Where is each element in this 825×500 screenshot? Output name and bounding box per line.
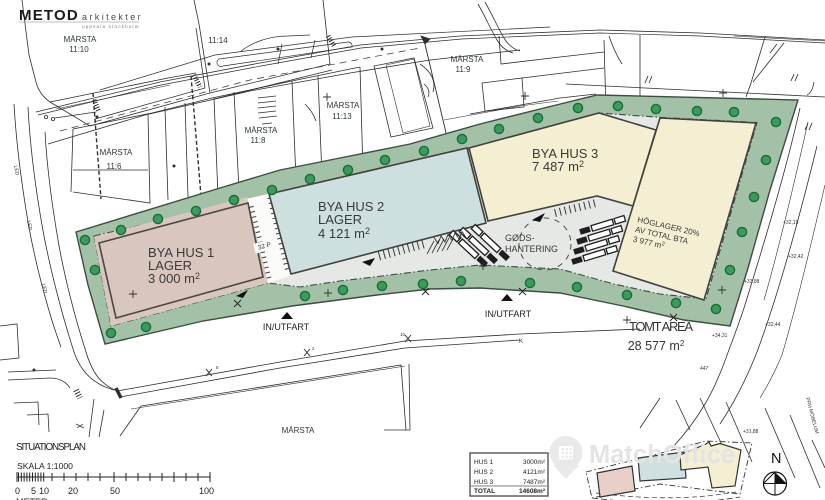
svg-text:METOD: METOD bbox=[19, 7, 79, 24]
svg-text:11:9: 11:9 bbox=[456, 65, 472, 74]
svg-text:+32,42: +32,42 bbox=[788, 254, 804, 260]
svg-text:uppsala stockholm: uppsala stockholm bbox=[82, 24, 140, 29]
svg-text:10: 10 bbox=[39, 486, 49, 496]
svg-text:28 577 m2: 28 577 m2 bbox=[628, 339, 685, 353]
svg-text:TOTAL: TOTAL bbox=[474, 488, 495, 495]
svg-text:MÄRSTA: MÄRSTA bbox=[245, 126, 278, 135]
svg-text:MatchOffice: MatchOffice bbox=[589, 441, 735, 469]
svg-text:MÄRSTA: MÄRSTA bbox=[282, 426, 315, 435]
svg-text:IN/UTFART: IN/UTFART bbox=[485, 309, 532, 319]
svg-text:HUS 3: HUS 3 bbox=[474, 479, 494, 486]
svg-text:GØDS-: GØDS- bbox=[505, 233, 535, 243]
svg-text:IN/UTFART: IN/UTFART bbox=[263, 322, 310, 332]
svg-text:SITUATIONSPLAN: SITUATIONSPLAN bbox=[16, 442, 86, 453]
svg-text:MÄRSTA: MÄRSTA bbox=[451, 55, 484, 64]
svg-text:3000m²: 3000m² bbox=[523, 459, 546, 466]
svg-text:+31,88: +31,88 bbox=[743, 429, 759, 435]
svg-text:4121m²: 4121m² bbox=[523, 469, 546, 476]
svg-text:11:14: 11:14 bbox=[208, 36, 228, 45]
svg-text:HUS 1: HUS 1 bbox=[474, 459, 494, 466]
svg-text:HUS 2: HUS 2 bbox=[474, 469, 494, 476]
svg-text:HANTERING: HANTERING bbox=[505, 244, 558, 254]
svg-text:LAGER: LAGER bbox=[318, 212, 362, 227]
svg-text:11:8: 11:8 bbox=[251, 136, 267, 145]
svg-text:447: 447 bbox=[700, 366, 709, 372]
svg-text:MÄRSTA: MÄRSTA bbox=[100, 148, 133, 157]
svg-text:MÄRSTA: MÄRSTA bbox=[64, 35, 97, 44]
svg-text:+32,44: +32,44 bbox=[765, 322, 781, 328]
svg-text:TOMT AREA: TOMT AREA bbox=[629, 319, 693, 334]
svg-text:SKALA 1:1000: SKALA 1:1000 bbox=[17, 461, 73, 471]
svg-text:10: 10 bbox=[400, 332, 406, 337]
svg-text:11:6: 11:6 bbox=[107, 162, 123, 171]
svg-text:+34,31: +34,31 bbox=[712, 333, 728, 339]
svg-text:5: 5 bbox=[31, 486, 36, 496]
svg-text:arkitekter: arkitekter bbox=[82, 12, 143, 22]
svg-text:100: 100 bbox=[199, 486, 214, 496]
svg-text:+32,19: +32,19 bbox=[783, 220, 799, 226]
svg-text:11:10: 11:10 bbox=[69, 45, 89, 54]
svg-text:11:13: 11:13 bbox=[332, 112, 352, 121]
svg-text:4 121 m2: 4 121 m2 bbox=[318, 226, 370, 241]
svg-text:20: 20 bbox=[68, 486, 78, 496]
svg-text:3 000 m2: 3 000 m2 bbox=[148, 271, 200, 286]
svg-text:0: 0 bbox=[15, 486, 20, 496]
svg-text:N: N bbox=[771, 451, 781, 467]
svg-text:7 487 m2: 7 487 m2 bbox=[532, 159, 584, 174]
svg-text:14608m²: 14608m² bbox=[519, 488, 546, 495]
svg-text:7487m²: 7487m² bbox=[523, 479, 546, 486]
svg-text:+33,88: +33,88 bbox=[744, 279, 760, 285]
svg-text:K: K bbox=[519, 339, 523, 345]
svg-text:50: 50 bbox=[110, 486, 120, 496]
svg-text:MÄRSTA: MÄRSTA bbox=[327, 101, 360, 110]
